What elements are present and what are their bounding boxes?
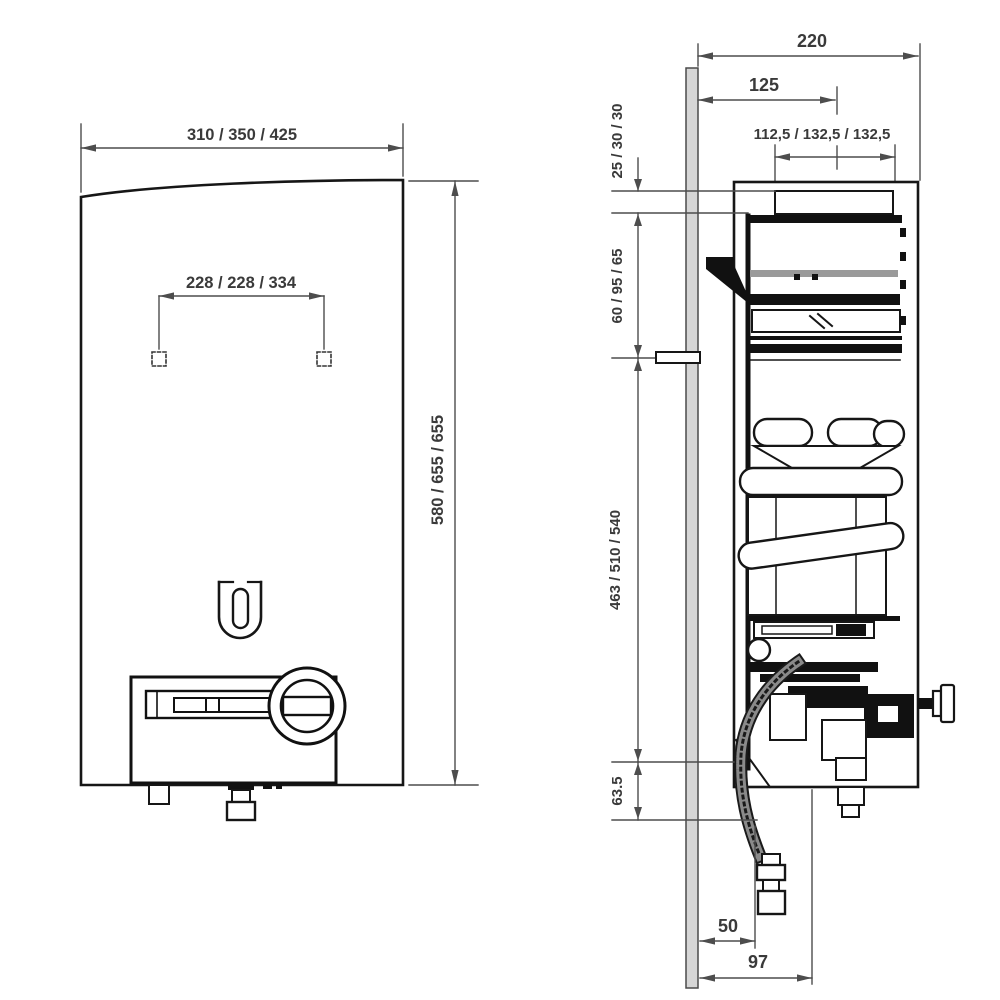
main-section-label: 463 / 510 / 540 [607,510,624,610]
fitting-tick-2 [276,784,282,789]
left-fitting [149,785,169,804]
baffle-band [750,270,898,277]
upper-section-label: 60 / 95 / 65 [609,248,626,323]
valve-body-center [822,720,866,760]
exchanger-pipe-1 [754,419,812,446]
flue-collar [775,191,893,214]
baffle-stud-1 [794,274,800,280]
exchanger-top-band [750,294,900,305]
mount-hole-left [152,352,166,366]
technical-drawing-page: 310 / 350 / 425 228 / 228 / 334 580 / 65… [0,0,1000,1000]
hose-union-3 [763,880,779,891]
fin-tick-2 [900,252,906,261]
fin-tick-1 [900,228,906,237]
pipe-nut [227,802,255,820]
exchanger-pipe-cap [874,421,904,447]
knob-stem [918,698,934,709]
top-gap-label: 25 / 30 / 30 [609,103,626,178]
lower-gap-label: 63.5 [609,776,626,805]
fin-tick-4 [900,316,906,325]
fitting-tick-1 [263,784,272,789]
baffle-stud-2 [812,274,818,280]
heat-shield-top [750,215,902,223]
panel-slider[interactable] [174,698,272,712]
panel-slider-handle[interactable] [206,698,219,712]
knob-plate [933,691,941,716]
hose-union-2 [757,865,785,880]
outlet-pipe-nut [842,805,859,817]
fin-line [750,336,902,340]
connection-offset-label: 97 [748,952,768,972]
burner-block [836,624,866,636]
wall-section [686,68,698,988]
manifold-band-1 [748,662,878,672]
flue-width-label: 112,5 / 132,5 / 132,5 [754,126,891,143]
knob-grip[interactable] [283,697,331,715]
water-pipe-upper [740,468,902,495]
outlet-pipe [838,787,864,805]
hose-union-1 [762,854,780,865]
fin-tick-3 [900,280,906,289]
wall-anchor-tab [656,352,700,363]
mount-spacing-label: 228 / 228 / 334 [186,274,297,292]
valve-outlet [836,758,866,780]
valve-slot [878,706,898,722]
knob-cap[interactable] [941,685,954,722]
gas-offset-label: 50 [718,916,738,936]
burner-plate [746,616,900,621]
mount-hole-right [317,352,331,366]
depth-label: 220 [797,31,827,51]
water-heater-dimension-drawing: 310 / 350 / 425 228 / 228 / 334 580 / 65… [0,0,1000,1000]
flue-offset-label: 125 [749,75,779,95]
front-height-label: 580 / 655 / 655 [429,415,447,525]
exchanger-band-2 [750,344,902,353]
control-panel [131,668,345,783]
valve-body-left [770,694,806,740]
pipe-stub [232,790,250,802]
front-width-label: 310 / 350 / 425 [187,126,297,144]
pilot-port [748,639,770,661]
hose-end-nut [758,891,785,914]
